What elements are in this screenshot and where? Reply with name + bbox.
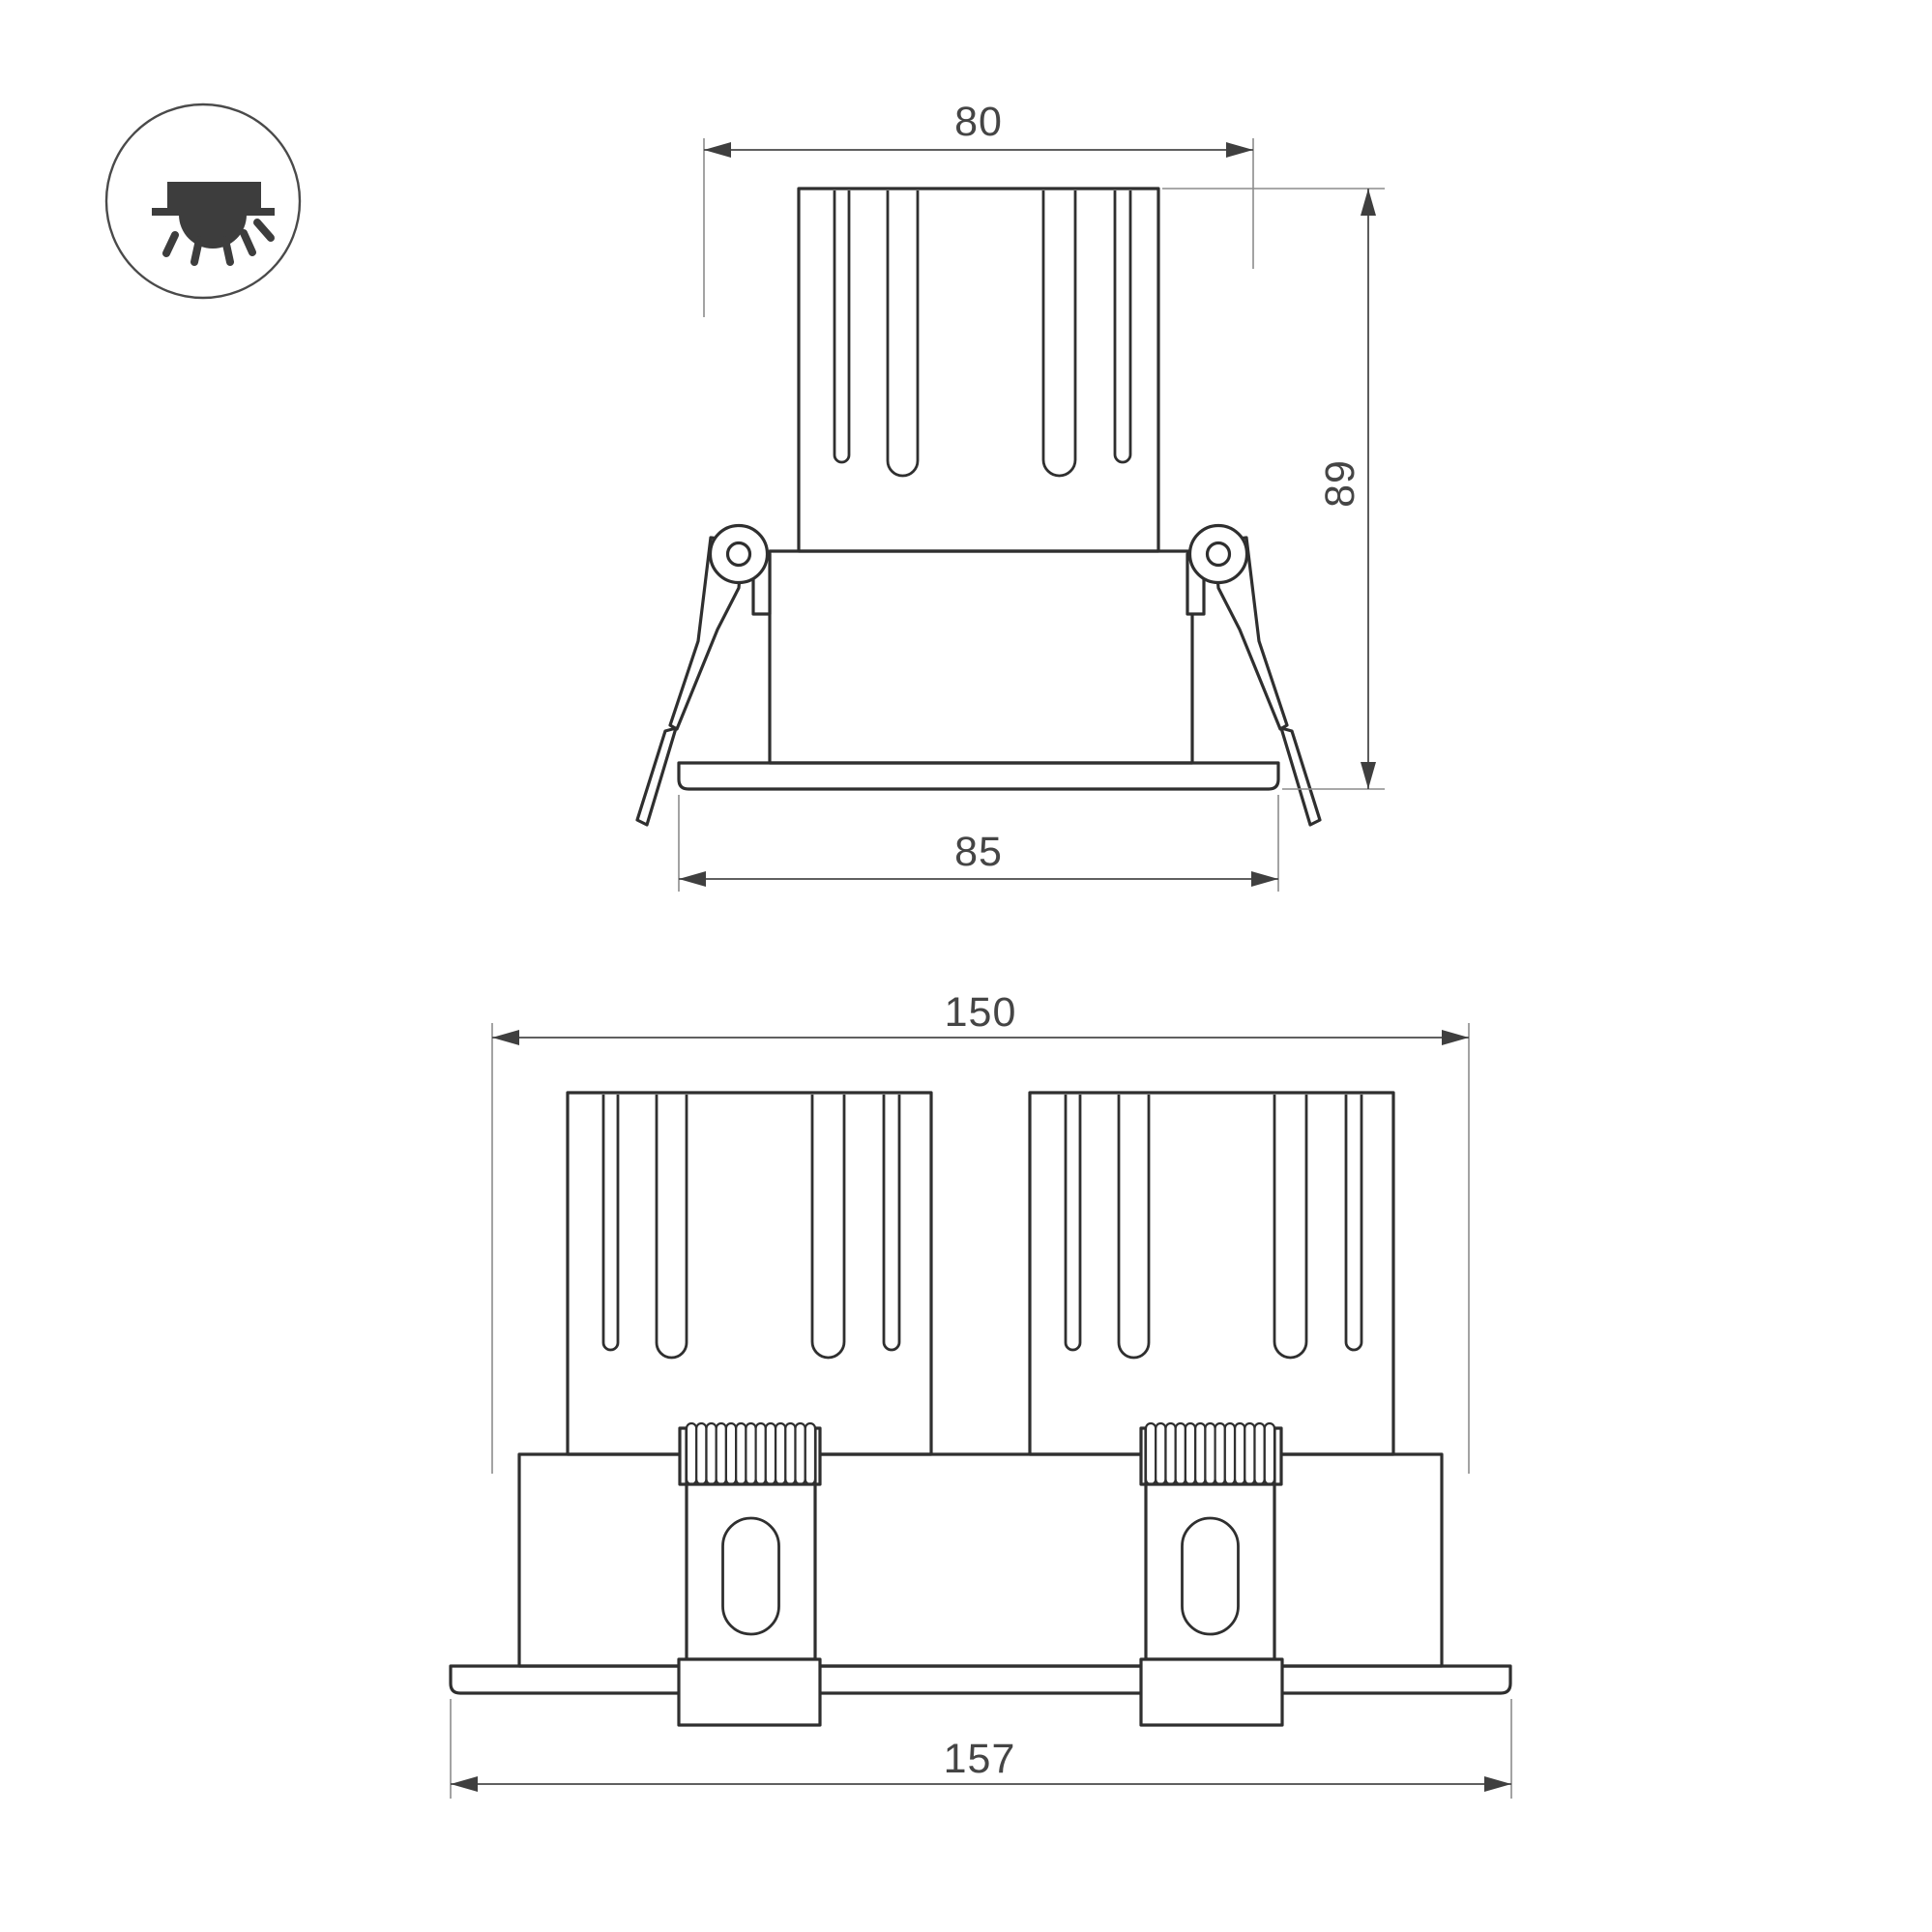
clip-leg	[637, 728, 676, 825]
heatsink-right-fin-slots	[1066, 1095, 1361, 1358]
dimension-body-width: 150	[492, 989, 1469, 1474]
heatsink-left-fin-slots	[603, 1095, 899, 1358]
clip-pivot	[711, 526, 768, 583]
dimension-flange-width: 85	[679, 795, 1278, 892]
bracket-foot	[1141, 1659, 1282, 1725]
bracket-foot	[679, 1659, 820, 1725]
adjustment-bracket-right	[1141, 1423, 1282, 1725]
recessed-downlight-icon	[106, 104, 300, 298]
dimension-label-85: 85	[954, 829, 1003, 875]
technical-drawing-page: 80 89 85	[0, 0, 1932, 1932]
trim-flange	[451, 1666, 1510, 1693]
spring-clip-left	[637, 526, 768, 826]
double-spot-front-view: 150 157	[451, 989, 1511, 1799]
spring-clip-right	[1190, 526, 1321, 826]
trim-flange	[679, 763, 1278, 789]
dimension-label-150: 150	[945, 989, 1017, 1036]
heatsink	[799, 189, 1158, 551]
single-spot-front-view: 80 89 85	[637, 99, 1385, 892]
clip-leg	[1281, 728, 1320, 825]
lamp-housing	[770, 551, 1192, 763]
heatsink-right	[1030, 1093, 1393, 1454]
icon-ceiling-flange	[152, 208, 275, 216]
heatsink-left	[568, 1093, 931, 1454]
dimension-label-157: 157	[944, 1736, 1016, 1782]
dimension-flange-width: 157	[451, 1699, 1511, 1799]
icon-lamp-body	[167, 182, 261, 210]
bracket-spring-coils	[1146, 1423, 1274, 1484]
technical-drawing: 80 89 85	[0, 0, 1932, 1932]
adjustment-bracket-left	[679, 1423, 820, 1725]
bracket-spring-coils	[687, 1423, 815, 1484]
dimension-label-89: 89	[1317, 459, 1363, 508]
dimension-top-width: 80	[704, 99, 1253, 317]
lamp-housing	[519, 1454, 1442, 1666]
dimension-label-80: 80	[954, 99, 1003, 145]
heatsink-fin-slots	[834, 190, 1130, 476]
clip-pivot	[1190, 526, 1247, 583]
